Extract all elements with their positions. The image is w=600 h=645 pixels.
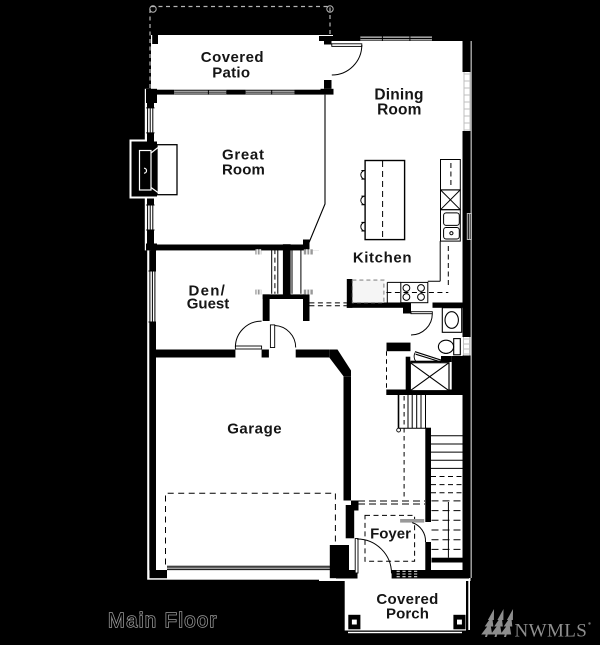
svg-text:Kitchen: Kitchen bbox=[353, 250, 412, 267]
svg-text:Foyer: Foyer bbox=[370, 525, 411, 542]
svg-text:Room: Room bbox=[222, 162, 265, 179]
svg-text:Main Floor: Main Floor bbox=[108, 610, 218, 632]
svg-text:NWMLS: NWMLS bbox=[515, 621, 588, 642]
svg-text:Guest: Guest bbox=[187, 296, 230, 313]
svg-text:Garage: Garage bbox=[227, 420, 282, 437]
svg-text:Room: Room bbox=[377, 102, 421, 119]
svg-text:Porch: Porch bbox=[386, 605, 429, 622]
svg-text:Patio: Patio bbox=[212, 65, 250, 82]
svg-text:Covered: Covered bbox=[201, 49, 264, 66]
